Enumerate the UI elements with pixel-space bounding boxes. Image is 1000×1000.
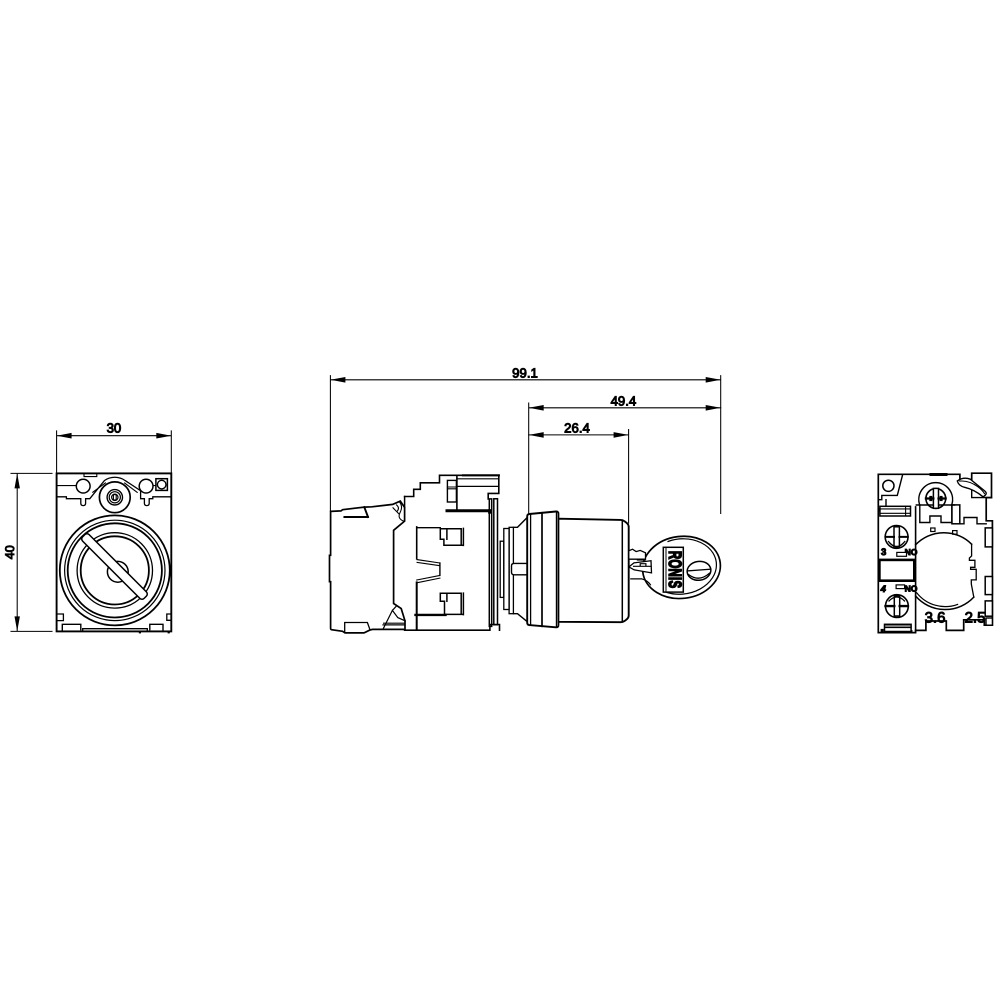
svg-text:4: 4: [880, 584, 887, 595]
svg-text:99.1: 99.1: [512, 365, 538, 380]
svg-text:40: 40: [3, 545, 17, 559]
svg-text:NO: NO: [905, 583, 918, 593]
svg-text:30: 30: [107, 421, 122, 436]
svg-text:2.5: 2.5: [965, 610, 986, 627]
svg-text:RONIS: RONIS: [665, 551, 684, 589]
svg-text:3: 3: [881, 547, 886, 558]
svg-text:26.4: 26.4: [564, 420, 590, 435]
svg-text:49.4: 49.4: [611, 393, 637, 408]
svg-text:3.6: 3.6: [925, 610, 946, 627]
